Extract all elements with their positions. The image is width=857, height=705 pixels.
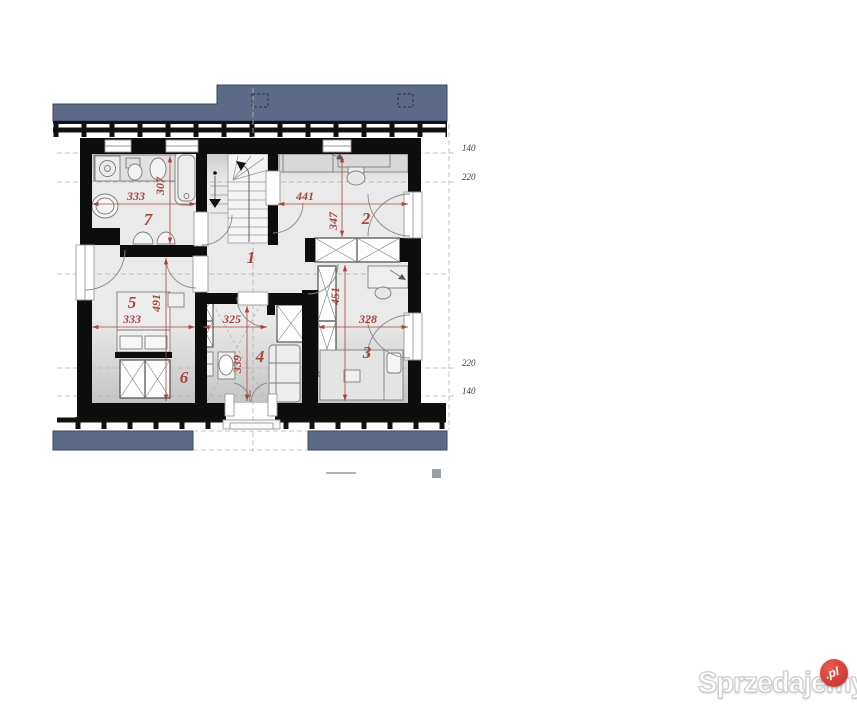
- level-top-220: 220: [462, 172, 476, 182]
- toilet: [128, 164, 142, 180]
- door-frame-bedroom5: [193, 256, 208, 292]
- level-bottom-220: 220: [462, 358, 476, 368]
- dim-bedroom2-height: 347: [326, 211, 340, 231]
- chair: [347, 171, 365, 185]
- eaves-hatch-top: [53, 124, 447, 137]
- floor-plan-drawing: 1 2 3 4 5 6 7 333 307 441 347 491 333 32…: [0, 0, 857, 705]
- dim-hall-width: 441: [295, 189, 314, 203]
- door-frame-bathroom: [194, 212, 208, 246]
- bidet: [150, 158, 166, 180]
- washing-machine: [95, 156, 120, 181]
- wall-bath-bed5: [120, 245, 207, 257]
- dim-room4-width: 325: [222, 312, 241, 326]
- wall-right-c: [408, 360, 421, 420]
- watermark-badge-text: .pl: [823, 664, 841, 682]
- level-labels: 140 220 220 140: [462, 143, 476, 396]
- wall-hall-bed2-b: [268, 203, 278, 245]
- dim-room4-height: 339: [230, 355, 244, 374]
- wall-right-a: [408, 138, 421, 192]
- room-label-5: 5: [128, 293, 137, 312]
- chair-bedroom3: [375, 287, 391, 299]
- room-label-2: 2: [361, 209, 371, 228]
- bed-headboard: [115, 352, 172, 358]
- room-label-4: 4: [255, 347, 265, 366]
- dim-bedroom3-height: 451: [328, 287, 342, 306]
- watermark: Sprzedajemy .pl: [698, 663, 857, 705]
- wall-bed5-room4: [195, 291, 207, 403]
- floor-plan-page: 1 2 3 4 5 6 7 333 307 441 347 491 333 32…: [0, 0, 857, 705]
- dim-bedroom5-height: 491: [149, 294, 163, 313]
- wall-left-lower: [77, 300, 92, 403]
- wall-right-b: [408, 238, 421, 313]
- room-label-1: 1: [247, 248, 256, 267]
- watermark-badge: .pl: [820, 659, 848, 687]
- wall-bed3-left: [302, 290, 318, 403]
- desk-band: [279, 154, 408, 172]
- misc-marks: [326, 469, 441, 478]
- balcony-jamb-right: [268, 394, 277, 416]
- wall-bottom-left: [77, 403, 226, 420]
- room-label-6: 6: [180, 368, 189, 387]
- sofa: [269, 345, 300, 402]
- wall-hall-bed2-a: [268, 138, 278, 173]
- wall-bath-hall: [196, 154, 207, 214]
- level-top-140: 140: [462, 143, 476, 153]
- level-bottom-140: 140: [462, 386, 476, 396]
- dim-bath-width: 333: [126, 189, 145, 203]
- dim-bedroom3-width: 328: [358, 312, 377, 326]
- room-label-3: 3: [362, 343, 372, 362]
- door-frame-bedroom2: [266, 171, 280, 205]
- balcony-jamb-left: [225, 394, 234, 416]
- nightstand: [168, 293, 184, 307]
- dim-bath-height: 307: [153, 176, 167, 196]
- dim-bedroom5-width: 333: [122, 312, 141, 326]
- door-frame-room4: [238, 292, 268, 305]
- roof-top: [53, 85, 447, 125]
